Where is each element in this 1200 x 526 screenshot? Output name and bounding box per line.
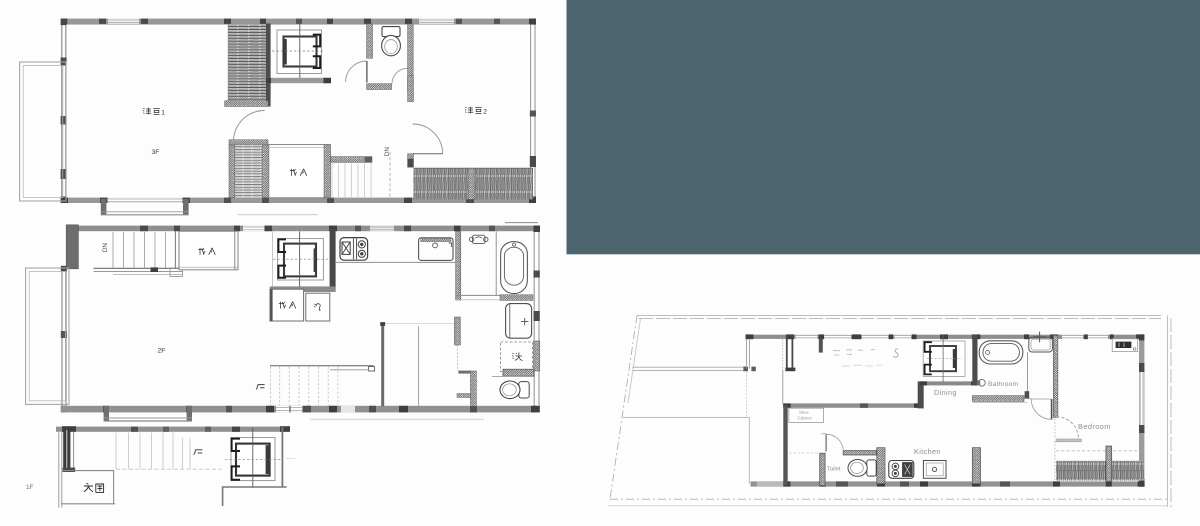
svg-text:1: 1 [161, 110, 165, 117]
svg-text:2F: 2F [158, 348, 166, 355]
svg-text:Bedroom: Bedroom [1078, 422, 1111, 431]
svg-text:2: 2 [483, 109, 487, 116]
svg-text:Toilet: Toilet [827, 466, 841, 472]
svg-text:1F: 1F [26, 484, 34, 491]
svg-text:Shoe: Shoe [799, 410, 809, 415]
svg-text:Dining: Dining [934, 388, 957, 397]
svg-text:Kitchen: Kitchen [914, 447, 941, 456]
svg-text:Cabinet: Cabinet [797, 416, 812, 421]
svg-text:3F: 3F [152, 149, 160, 156]
svg-text:DN: DN [102, 243, 109, 253]
svg-text:Bathroom: Bathroom [988, 381, 1018, 388]
